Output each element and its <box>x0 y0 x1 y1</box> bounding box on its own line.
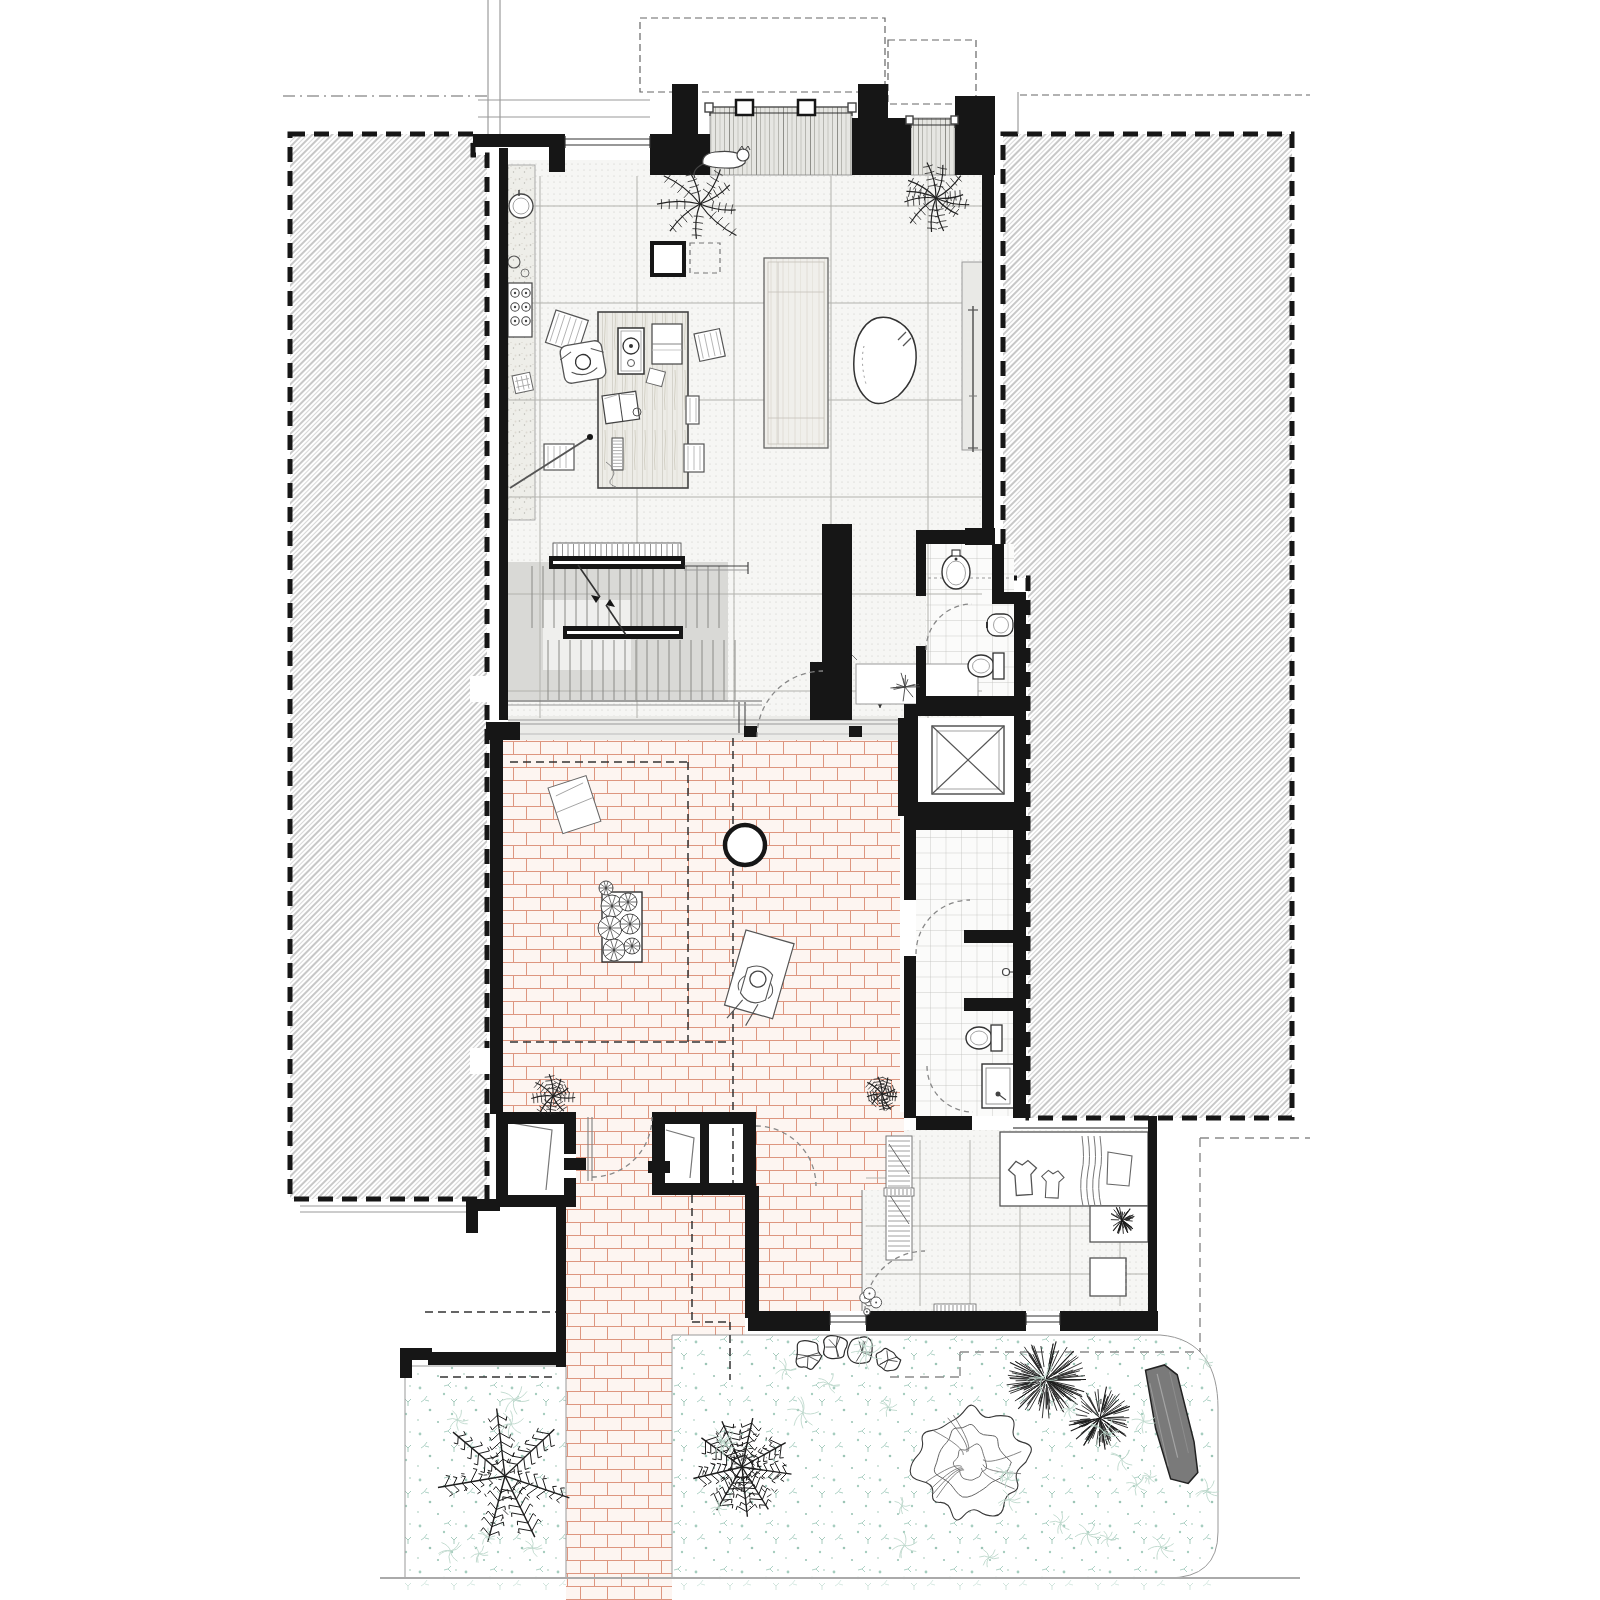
wall-tap <box>1003 969 1010 976</box>
wall <box>466 1199 478 1233</box>
courtyard-brick-paving <box>566 1335 672 1600</box>
wall <box>1014 704 1026 816</box>
papers <box>512 372 533 393</box>
toilet <box>966 1025 1002 1051</box>
laundry-sink <box>982 1064 1014 1108</box>
wall <box>428 1352 566 1365</box>
wall <box>652 1112 665 1195</box>
wall <box>898 718 918 816</box>
wall <box>473 134 565 147</box>
wall <box>849 726 862 737</box>
floor-plan-canvas <box>0 0 1600 1600</box>
wall <box>955 96 995 175</box>
wall <box>1013 815 1026 1118</box>
wall <box>866 1311 1026 1331</box>
hatch-notch <box>470 676 490 702</box>
roof-outline-dashed <box>640 18 885 92</box>
wall <box>400 1348 412 1378</box>
wall <box>916 704 1020 716</box>
wall <box>743 1112 756 1195</box>
wall <box>964 998 1014 1011</box>
wall <box>496 1112 508 1207</box>
wall <box>486 722 520 740</box>
door-leaf <box>506 1122 552 1190</box>
stool <box>684 444 704 472</box>
wall <box>650 134 710 175</box>
wall <box>916 1116 972 1130</box>
party-wall-right <box>1003 134 1292 1118</box>
wall <box>852 118 911 175</box>
bidet <box>987 614 1013 636</box>
entry-deck <box>911 118 955 175</box>
wall <box>700 1124 709 1183</box>
wall <box>648 1161 670 1173</box>
door-leaf <box>666 1130 694 1178</box>
toilet <box>968 653 1004 679</box>
wall <box>748 1311 830 1331</box>
wall <box>564 1158 586 1170</box>
appliance <box>1090 1258 1126 1296</box>
garden-overflow <box>672 1578 1218 1592</box>
wall <box>499 148 508 720</box>
long-bench-table <box>764 258 828 448</box>
mullion <box>798 100 815 115</box>
glazing-post <box>848 103 856 112</box>
wall <box>652 1183 756 1195</box>
glazing-post <box>906 116 913 124</box>
person-at-desk <box>558 339 608 384</box>
wall <box>549 147 565 172</box>
wall <box>992 544 1004 594</box>
wall <box>1148 1116 1157 1318</box>
open-book <box>602 391 640 423</box>
mullion <box>736 100 753 115</box>
floor-plan-page <box>0 0 1600 1600</box>
roof-outline-dashed <box>888 40 976 104</box>
wall <box>982 175 994 528</box>
wall <box>964 930 1014 943</box>
glazing-post <box>705 103 713 112</box>
wall <box>904 815 1016 830</box>
wall <box>822 524 852 720</box>
wall <box>564 1112 576 1154</box>
wall <box>965 528 995 545</box>
folded-cloth <box>1107 1152 1132 1186</box>
wall <box>916 646 926 706</box>
wall <box>652 1112 756 1124</box>
wall <box>1060 1311 1158 1331</box>
courtyard-brick-paving <box>759 1186 862 1311</box>
party-wall-left <box>290 134 487 1199</box>
wall <box>916 530 926 596</box>
hatch-notch <box>470 1048 490 1074</box>
wall <box>672 84 698 136</box>
wall <box>858 84 888 120</box>
wall <box>904 956 916 1118</box>
wall <box>904 802 1026 816</box>
wall <box>556 1195 566 1367</box>
garden-overflow <box>405 1578 566 1592</box>
garden-bed-left <box>405 1366 566 1578</box>
bush <box>824 1336 848 1359</box>
column <box>652 243 684 275</box>
stool <box>694 329 725 362</box>
wall <box>1014 592 1026 712</box>
wall <box>904 830 916 900</box>
wall <box>744 726 757 737</box>
courtyard-table <box>725 825 765 865</box>
courtyard-brick-paving <box>566 1195 745 1335</box>
wall <box>490 736 503 1114</box>
glazing-post <box>951 116 958 124</box>
wall <box>745 1186 759 1318</box>
stool <box>686 396 699 424</box>
